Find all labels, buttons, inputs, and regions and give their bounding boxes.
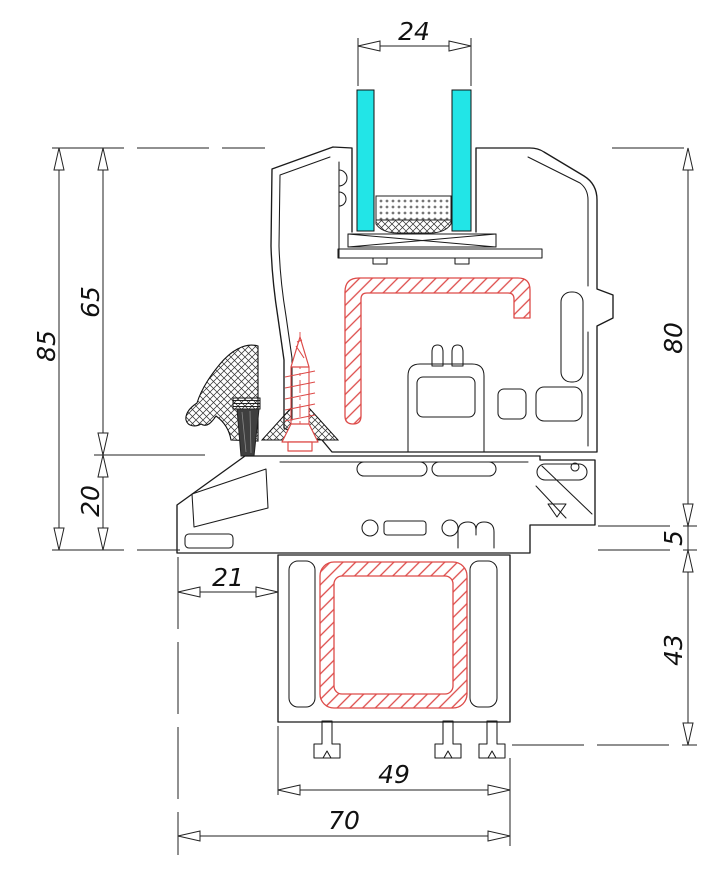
dim-label-5: 5 [659,530,688,546]
dim-label-49: 49 [378,760,410,789]
dim-label-65: 65 [76,286,105,318]
spacer-desiccant [376,196,451,220]
gasket-lip [237,409,259,456]
screw-port [362,520,378,536]
screw [262,332,338,452]
anchor-foot [314,721,340,758]
steel-reinforcement-extension [320,562,467,708]
clip-channel [458,522,494,548]
glazing-unit [338,90,542,264]
anchor-foot [479,721,505,758]
profile-cross-section-drawing: 24 85 65 20 80 5 43 21 [0,0,718,871]
dim-label-70: 70 [328,806,360,835]
screw-port [442,520,458,536]
dim-label-21: 21 [212,563,244,592]
drawing-canvas: 24 85 65 20 80 5 43 21 [0,0,718,871]
glass-pane-outer [357,90,374,231]
spacer-sealant [376,220,451,233]
glazing-bead-clip [339,162,347,258]
dimension-left-heights: 85 65 20 [32,148,265,550]
glass-pane-inner [452,90,471,231]
dim-label-24: 24 [398,17,430,46]
sash-profile [271,147,613,452]
anchor-foot [435,721,461,758]
gasket [186,345,260,456]
dimension-glazing-24: 24 [358,17,471,86]
steel-reinforcement-sash [345,278,530,424]
dimension-right-heights: 80 5 43 [512,148,697,745]
dim-label-80: 80 [659,322,688,354]
gasket-holder [233,398,260,409]
frame-profile [177,456,595,553]
dim-label-20: 20 [76,485,105,517]
extension-profile [278,555,510,758]
dim-label-43: 43 [659,634,688,666]
dim-label-85: 85 [32,330,61,362]
